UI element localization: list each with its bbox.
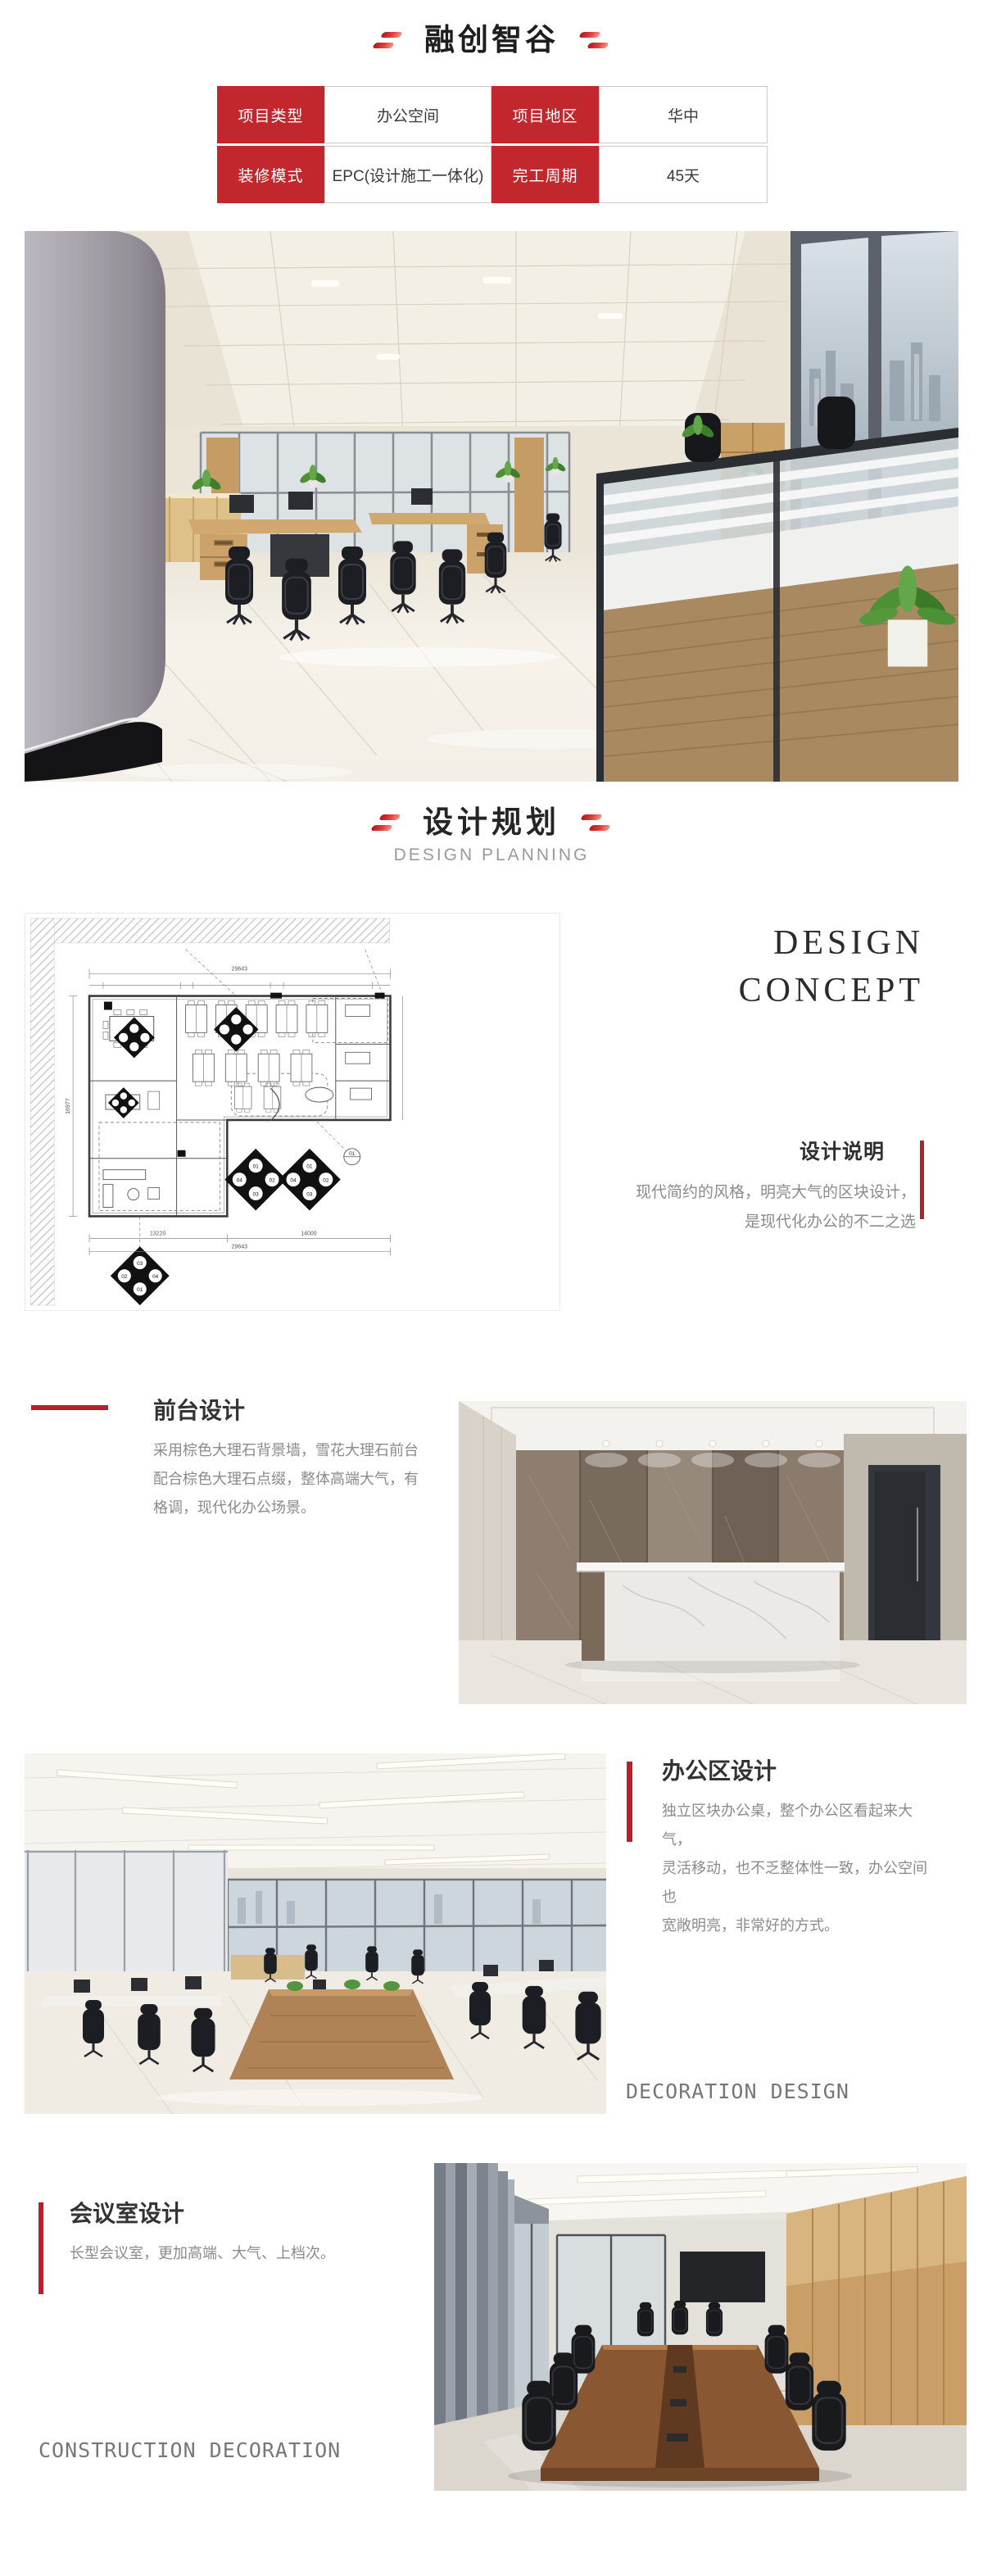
- design-note-line: 现代简约的风格，明亮大气的区块设计，: [564, 1178, 916, 1208]
- design-note: 设计说明 现代简约的风格，明亮大气的区块设计， 是现代化办公的不二之选: [564, 1136, 924, 1237]
- red-dash-icon: [582, 814, 611, 831]
- legend-diamond: 01 04 02 03: [279, 1149, 341, 1211]
- dim-left: 16977: [66, 1098, 71, 1114]
- main-office-photo-illustration: [25, 231, 958, 782]
- accent-bar: [627, 1762, 632, 1842]
- meeting-room-photo-illustration: [434, 2163, 967, 2491]
- dim-bottom-left: 13220: [150, 1231, 166, 1236]
- svg-text:04: 04: [237, 1178, 243, 1184]
- cell-region-label: 项目地区: [491, 86, 599, 143]
- project-info-table: 项目类型 办公空间 项目地区 华中 装修模式 EPC(设计施工一体化) 完工周期…: [217, 86, 768, 203]
- meeting-room-photo: [434, 2163, 967, 2491]
- legend-diamond: 01 04 02 03: [224, 1149, 287, 1211]
- svg-text:02: 02: [270, 1178, 276, 1184]
- decoration-design-caption: DECORATION DESIGN: [626, 2079, 849, 2103]
- page-header: 融创智谷: [0, 25, 983, 55]
- office-area-photo: [25, 1753, 606, 2114]
- svg-text:04: 04: [290, 1178, 297, 1184]
- svg-text:01: 01: [253, 1164, 260, 1170]
- red-dash-icon: [372, 814, 401, 831]
- svg-text:02: 02: [121, 1274, 128, 1280]
- office-area-photo-illustration: [25, 1753, 606, 2114]
- construction-decoration-caption: CONSTRUCTION DECORATION: [39, 2438, 341, 2462]
- meeting-room-text: 长型会议室，更加高端、大气、上档次。: [70, 2239, 414, 2268]
- svg-text:03: 03: [253, 1192, 260, 1198]
- legend-diamond: 03 02 04 01: [111, 1246, 170, 1305]
- floor-plan: 29643: [25, 913, 560, 1311]
- reception-photo-illustration: [459, 1401, 967, 1704]
- cell-mode-label: 装修模式: [217, 146, 324, 203]
- dim-total-bottom: 29643: [232, 1244, 248, 1249]
- office-area-title: 办公区设计: [662, 1753, 777, 1786]
- floor-plan-drawing: 29643: [25, 914, 559, 1310]
- meeting-room-title: 会议室设计: [70, 2196, 184, 2229]
- cell-duration-value: 45天: [599, 146, 768, 203]
- section-title: 设计规划: [423, 807, 560, 837]
- cell-mode-value: EPC(设计施工一体化): [324, 146, 491, 203]
- reception-photo: [459, 1401, 967, 1704]
- design-note-line: 是现代化办公的不二之选: [564, 1208, 916, 1237]
- cell-project-type-label: 项目类型: [217, 86, 324, 143]
- section-subtitle: DESIGN PLANNING: [394, 846, 590, 865]
- dim-total-top: 29643: [232, 967, 248, 973]
- design-note-title: 设计说明: [564, 1136, 924, 1165]
- svg-text:04: 04: [152, 1274, 159, 1280]
- svg-text:03: 03: [137, 1261, 143, 1267]
- red-dash-icon: [374, 32, 403, 48]
- svg-text:01: 01: [306, 1164, 313, 1170]
- page-title: 融创智谷: [424, 25, 559, 55]
- dim-bottom-right: 14000: [301, 1231, 317, 1236]
- office-area-text: 独立区块办公桌，整个办公区看起来大气， 灵活移动，也不乏整体性一致，办公空间也 …: [662, 1797, 940, 1940]
- reception-title: 前台设计: [153, 1393, 245, 1426]
- design-concept-heading: DESIGN CONCEPT: [547, 919, 924, 1014]
- callout-circle: 01: [344, 1149, 360, 1165]
- cell-project-type-value: 办公空间: [324, 86, 491, 143]
- svg-text:02: 02: [323, 1178, 329, 1184]
- accent-bar: [920, 1141, 924, 1219]
- cell-duration-label: 完工周期: [491, 146, 599, 203]
- accent-line: [31, 1405, 108, 1410]
- accent-bar: [39, 2202, 43, 2294]
- page: 融创智谷 项目类型 办公空间 项目地区 华中 装修模式 EPC(设计施工一体化)…: [0, 0, 983, 2576]
- svg-text:01: 01: [349, 1151, 356, 1157]
- red-dash-icon: [580, 32, 609, 48]
- reception-text: 采用棕色大理石背景墙，雪花大理石前台 配合棕色大理石点缀，整体高端大气，有 格调…: [153, 1436, 424, 1522]
- cell-region-value: 华中: [599, 86, 768, 143]
- svg-text:01: 01: [137, 1287, 143, 1293]
- main-office-photo: [25, 231, 958, 782]
- section-header-design-planning: 设计规划 DESIGN PLANNING: [0, 807, 983, 865]
- svg-text:03: 03: [306, 1192, 313, 1198]
